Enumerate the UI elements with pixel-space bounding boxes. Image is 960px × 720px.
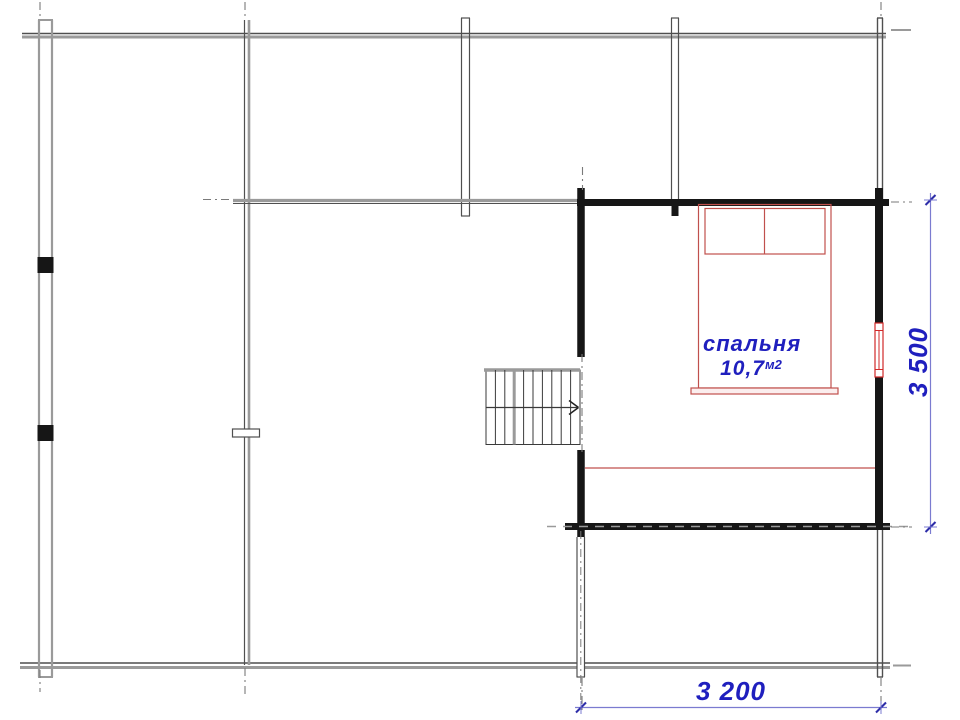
room-area-unit: м2: [765, 357, 782, 372]
interior-partitions: [233, 18, 680, 665]
bed-footboard: [691, 388, 838, 394]
room-label-bedroom: спальня: [703, 332, 799, 355]
dimension-label-height: 3 500: [905, 310, 931, 414]
floor-plan-drawing: [0, 0, 960, 720]
partition-joint: [233, 429, 260, 437]
room-area-bedroom: 10,7м2: [703, 358, 799, 380]
under-bedroom-wall: [577, 531, 586, 700]
floor-plan-canvas: спальня 10,7м2 3 200 3 500: [0, 0, 960, 720]
staircase: [484, 370, 580, 445]
room-area-value: 10,7: [720, 357, 765, 380]
bedroom-window: [875, 323, 883, 377]
dimension-label-width: 3 200: [676, 678, 786, 705]
